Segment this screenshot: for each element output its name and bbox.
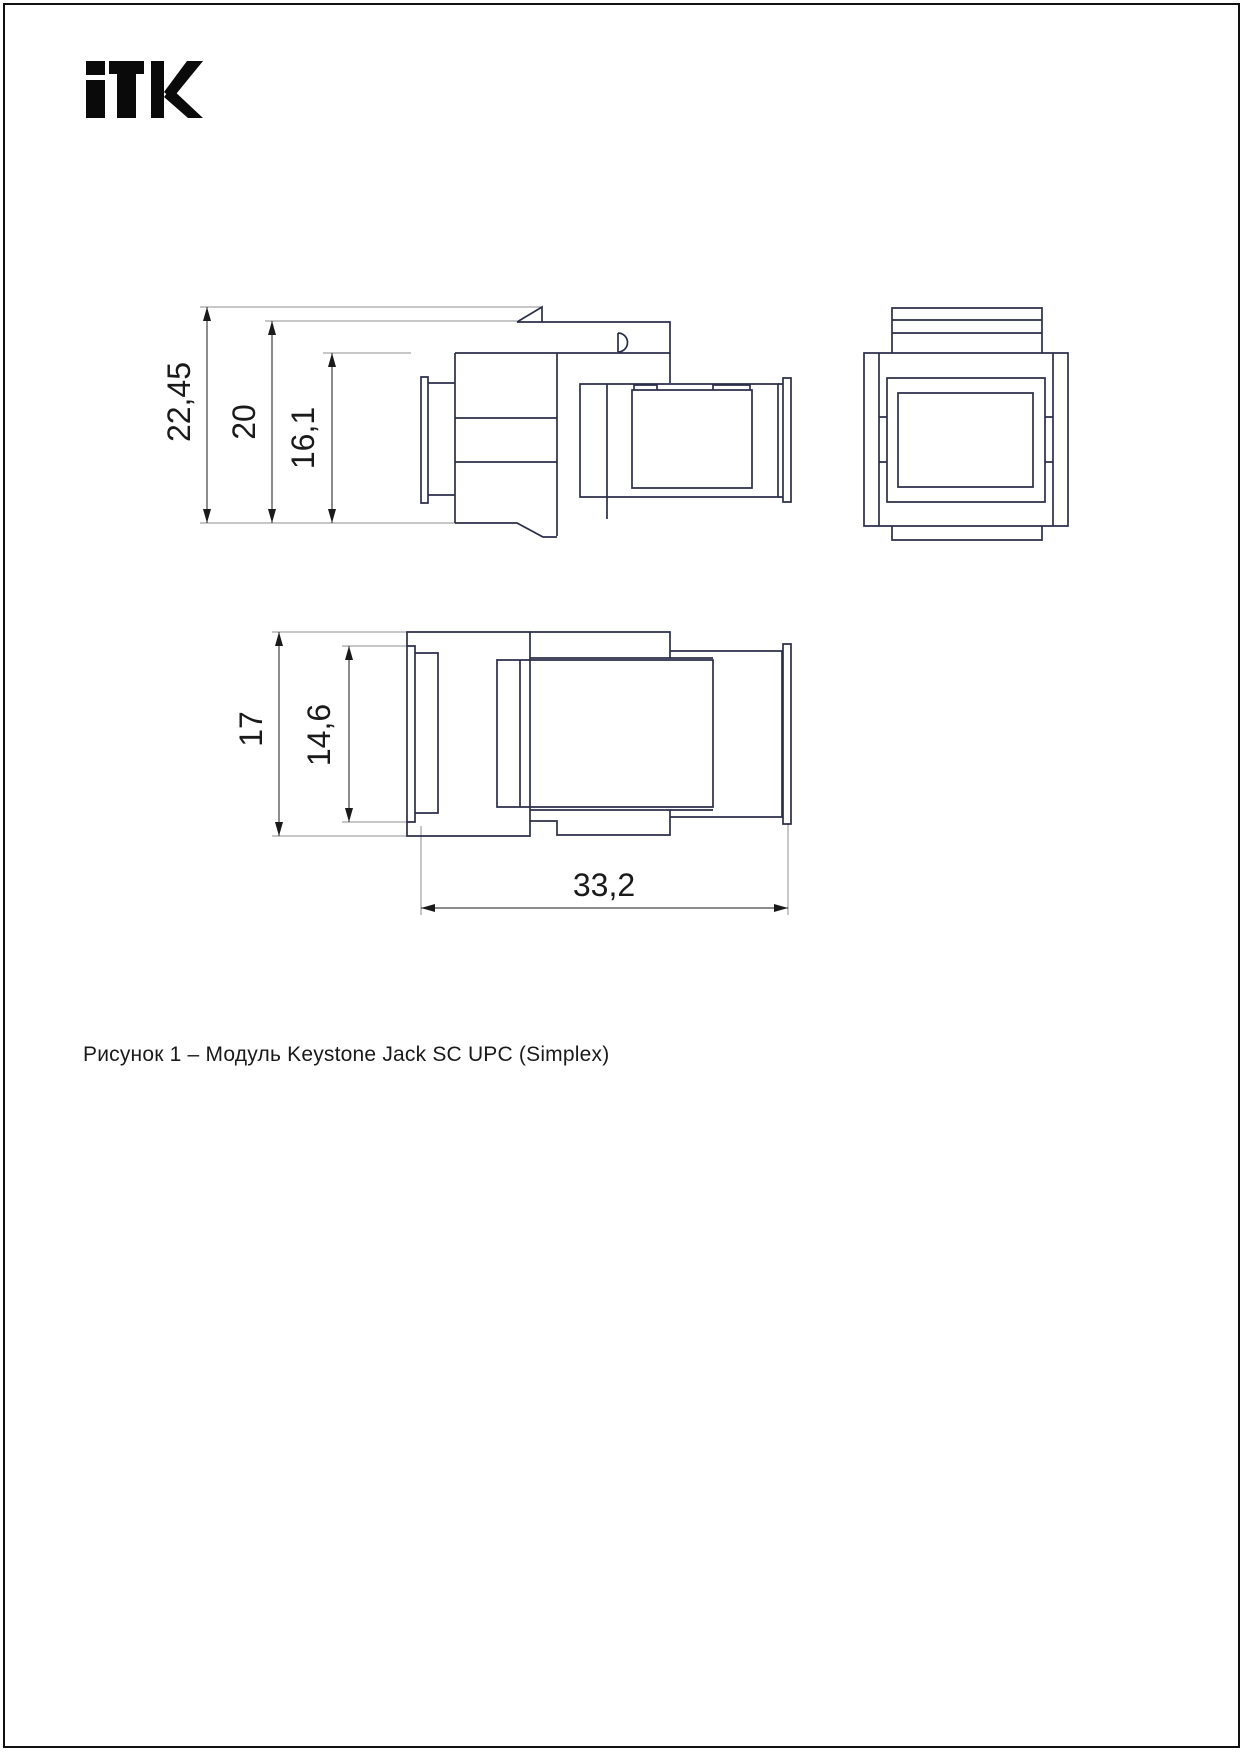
dimension-label-length: 33,2 xyxy=(573,867,635,903)
dimension-label-overall-height: 22,45 xyxy=(161,362,197,442)
side-view-latch-slot xyxy=(618,333,628,352)
top-view-adapter-end-plate xyxy=(783,644,791,824)
top-view: 17 14,6 33,2 xyxy=(233,632,791,915)
side-view-latch-arm xyxy=(517,307,670,383)
logo-letter-t-bar xyxy=(109,61,144,74)
top-view-mid-body xyxy=(530,632,670,835)
top-view-cap-outline xyxy=(407,632,530,836)
front-view-side-notches xyxy=(879,417,1053,462)
logo-letter-i-stem xyxy=(86,80,105,118)
side-view-middle-band xyxy=(455,418,557,462)
side-view-body-outline xyxy=(455,353,670,537)
front-view-inner-opening xyxy=(898,393,1033,487)
front-view-inner-frame xyxy=(887,378,1045,502)
datasheet-page: 22,45 20 16,1 xyxy=(0,0,1244,1752)
side-view-adapter-inner xyxy=(632,385,752,488)
figure-caption: Рисунок 1 – Модуль Keystone Jack SC UPC … xyxy=(83,1043,609,1067)
dimension-label-overall-width: 17 xyxy=(233,711,269,747)
top-view-adapter-neck xyxy=(670,651,713,817)
front-view-top-tab xyxy=(892,308,1042,353)
dimension-label-latch-height: 20 xyxy=(226,404,262,440)
side-view-adapter-end-plate xyxy=(778,378,791,502)
front-view-bottom-tab xyxy=(892,526,1042,540)
side-view-front-block xyxy=(428,383,455,495)
technical-drawing: 22,45 20 16,1 xyxy=(0,0,1244,1752)
logo-letter-k-stem xyxy=(151,61,164,118)
top-view-adapter-flange xyxy=(713,651,782,817)
front-view xyxy=(864,308,1068,540)
logo-letter-i-dot xyxy=(86,61,105,75)
top-view-dimension-arrows xyxy=(275,632,788,912)
top-view-flange xyxy=(407,646,415,822)
top-view-front-block xyxy=(415,653,438,813)
side-view-flange xyxy=(421,377,428,503)
side-view: 22,45 20 16,1 xyxy=(161,307,791,537)
top-view-dimension-lines xyxy=(279,632,788,908)
logo-letter-k-lower-arm xyxy=(164,88,203,118)
itk-logo xyxy=(86,61,203,118)
side-view-adapter-outline xyxy=(580,384,778,519)
front-view-outer-body xyxy=(864,353,1068,526)
dimension-label-inner-width: 14,6 xyxy=(301,704,337,766)
logo-letter-t-stem xyxy=(117,74,136,118)
dimension-label-body-height: 16,1 xyxy=(285,407,321,469)
